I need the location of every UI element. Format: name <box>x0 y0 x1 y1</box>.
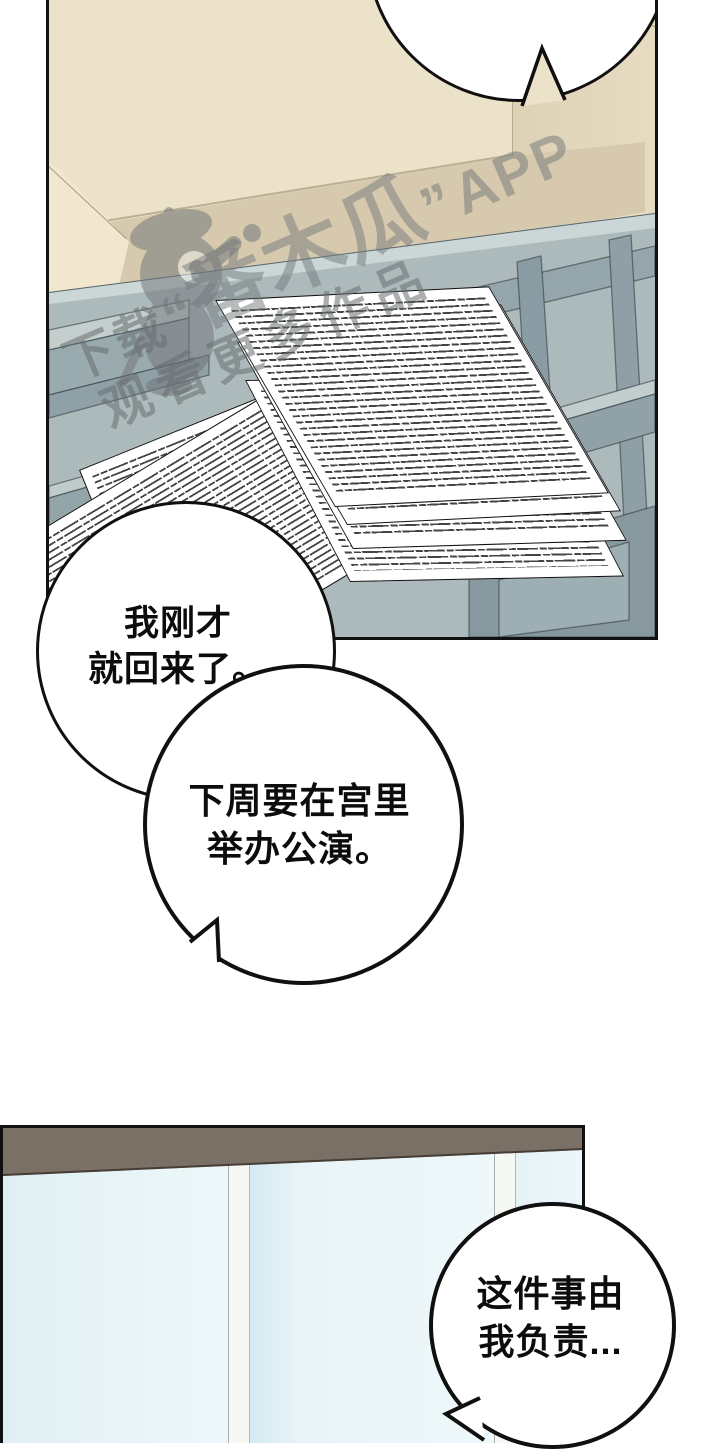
speech-bubble-3-line2: 我负责... <box>476 1318 624 1366</box>
window-pane-left <box>3 1128 228 1443</box>
window-mullion-left <box>228 1128 250 1443</box>
speech-bubble-3-tail <box>440 1392 490 1440</box>
comic-page: { "comic": { "bubble_top": { "text": "" … <box>0 0 720 1440</box>
speech-bubble-2-line1: 下周要在宫里 <box>188 777 410 825</box>
speech-bubble-1-line1: 我刚才 <box>88 601 268 647</box>
speech-bubble-top-tail <box>519 42 569 112</box>
watermark-mascot-icon <box>111 200 267 396</box>
speech-bubble-2-line2: 举办公演。 <box>188 825 410 873</box>
speech-bubble-2-text: 下周要在宫里 举办公演。 <box>188 777 410 872</box>
speech-bubble-3-text: 这件事由 我负责... <box>476 1270 624 1365</box>
speech-bubble-3-line1: 这件事由 <box>476 1270 624 1318</box>
speech-bubble-2-tail <box>184 912 226 970</box>
